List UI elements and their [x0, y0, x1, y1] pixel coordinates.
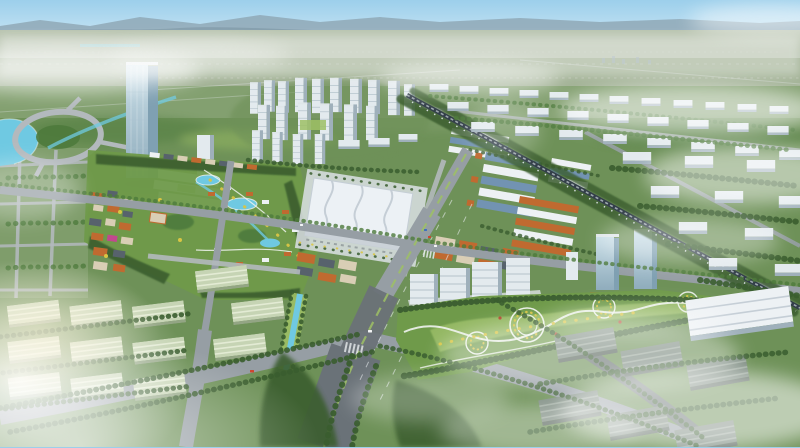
car — [300, 224, 303, 226]
yellow-tree — [178, 238, 182, 242]
courtyard-lawn — [300, 120, 326, 130]
cloud-wisp — [469, 98, 541, 158]
car — [424, 229, 427, 231]
low-slab — [399, 134, 418, 142]
residential-tower — [272, 132, 283, 162]
slab-building — [447, 102, 468, 111]
office-slab — [440, 268, 466, 304]
car — [434, 245, 437, 247]
aerial-city-masterplan-rendering: Aerial city master-plan rendering — [0, 0, 800, 447]
cloud — [380, 62, 560, 94]
fog-streak — [350, 374, 510, 422]
residential-tower — [344, 104, 357, 141]
slab-building-large — [775, 264, 800, 276]
office-slab — [410, 274, 434, 304]
park-accent — [498, 316, 501, 319]
low-slab — [368, 138, 389, 147]
residential-tower — [293, 134, 304, 164]
village-hall — [149, 212, 166, 224]
residential-tower — [252, 130, 263, 161]
slab-building-large — [623, 152, 651, 164]
rendering-canvas: Aerial city master-plan rendering — [0, 0, 800, 447]
car — [428, 236, 431, 238]
slab-building — [603, 134, 627, 144]
residential-tower — [366, 106, 378, 140]
slab-building — [520, 90, 539, 98]
mid-rise-office — [566, 252, 578, 280]
slab-building — [647, 138, 671, 148]
office-slab-side — [434, 274, 438, 304]
cloud — [110, 42, 290, 70]
yellow-tree — [118, 210, 122, 214]
office-slab — [506, 258, 530, 298]
residential-tower — [315, 134, 326, 164]
yellow-tree — [104, 254, 108, 258]
car — [368, 330, 372, 333]
cloud — [600, 216, 780, 264]
slab-building — [550, 92, 569, 100]
slab-building — [559, 130, 583, 140]
low-slab — [338, 140, 359, 149]
